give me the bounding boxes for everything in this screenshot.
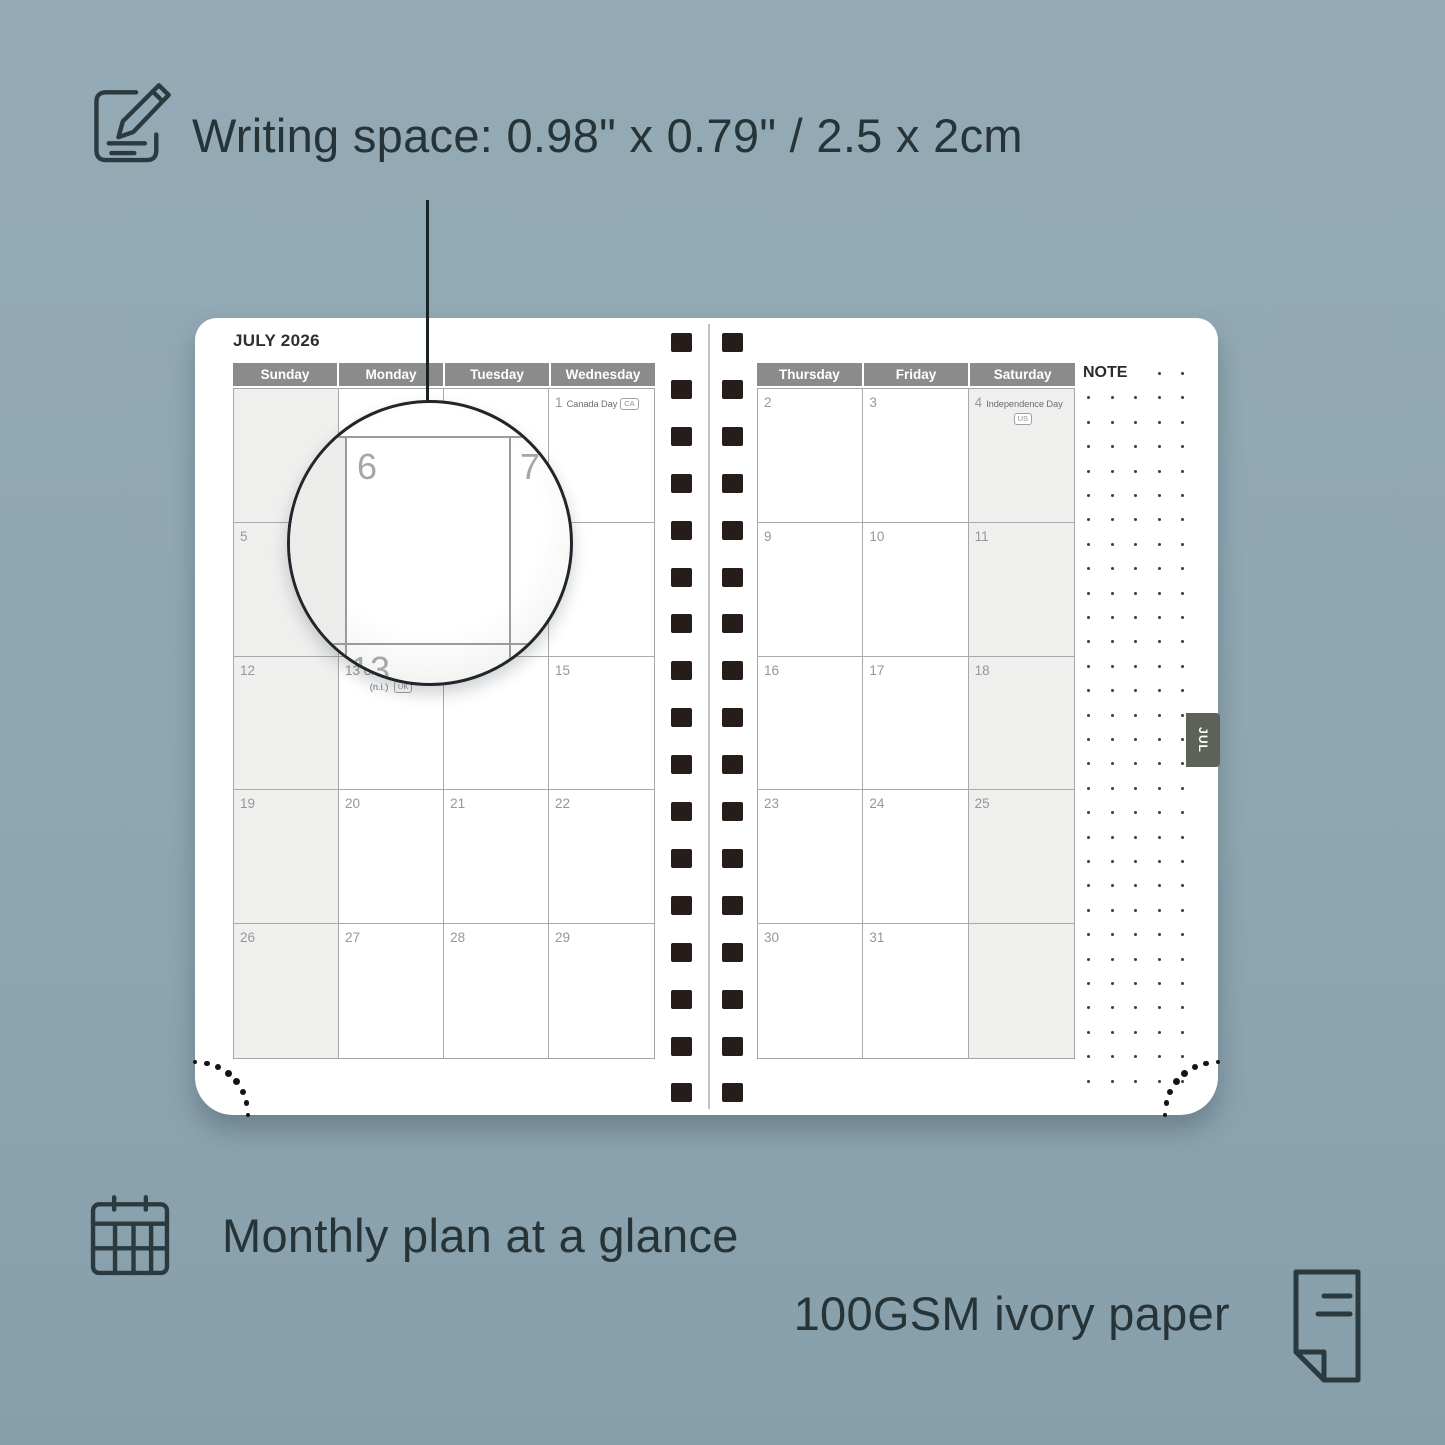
note-dot	[1181, 689, 1184, 692]
date-number: 21	[450, 796, 465, 811]
note-dot	[1158, 982, 1161, 985]
note-dot	[1134, 445, 1137, 448]
note-dot	[1111, 616, 1114, 619]
binding-hole	[722, 614, 743, 633]
note-dot	[1158, 1055, 1161, 1058]
note-dot	[1158, 836, 1161, 839]
binding-hole	[722, 896, 743, 915]
note-dot	[1158, 567, 1161, 570]
note-dot	[1158, 909, 1161, 912]
date-number: 23	[764, 796, 779, 811]
spiral-binding	[671, 333, 763, 1113]
note-dot	[1134, 470, 1137, 473]
binding-hole	[722, 474, 743, 493]
date-number: 9	[764, 529, 772, 544]
note-dot	[1158, 494, 1161, 497]
binding-hole	[722, 802, 743, 821]
note-dot	[1158, 933, 1161, 936]
day-header-tuesday: Tuesday	[445, 363, 549, 386]
note-dot	[1111, 1006, 1114, 1009]
note-dot	[1087, 665, 1090, 668]
binding-hole	[671, 568, 692, 587]
calendar-cell-empty	[969, 924, 1074, 1058]
binding-hole	[722, 1083, 743, 1102]
note-dot	[1181, 1006, 1184, 1009]
note-dot	[1087, 762, 1090, 765]
holiday-name: Independence Day	[986, 399, 1062, 409]
note-dot	[1111, 762, 1114, 765]
note-dot	[1181, 933, 1184, 936]
note-dot	[1158, 616, 1161, 619]
note-dot	[1111, 494, 1114, 497]
note-dot	[1087, 811, 1090, 814]
note-dot	[1181, 762, 1184, 765]
country-badge: US	[1014, 413, 1032, 425]
note-dot	[1111, 445, 1114, 448]
date-number: 15	[555, 663, 570, 678]
note-dot	[1134, 665, 1137, 668]
note-dot	[1134, 1006, 1137, 1009]
calendar-cell-19: 19	[234, 790, 339, 924]
binding-hole	[671, 755, 692, 774]
binding-hole	[722, 568, 743, 587]
note-dot	[1134, 616, 1137, 619]
note-dot	[1158, 665, 1161, 668]
note-dot	[1087, 714, 1090, 717]
date-number: 20	[345, 796, 360, 811]
note-dot	[1158, 884, 1161, 887]
note-dot	[1134, 884, 1137, 887]
binding-hole	[722, 849, 743, 868]
binding-hole	[722, 943, 743, 962]
binding-hole	[671, 1037, 692, 1056]
note-dot	[1087, 640, 1090, 643]
perforation-dot	[204, 1061, 210, 1067]
writing-space-caption: Writing space: 0.98" x 0.79" / 2.5 x 2cm	[192, 108, 1023, 163]
note-dot	[1087, 616, 1090, 619]
date-number: 10	[869, 529, 884, 544]
binding-hole	[671, 990, 692, 1009]
note-dot	[1111, 689, 1114, 692]
note-dot	[1087, 470, 1090, 473]
calendar-cell-26: 26	[234, 924, 339, 1058]
note-dot	[1087, 543, 1090, 546]
binding-hole	[671, 333, 692, 352]
note-dot	[1134, 592, 1137, 595]
note-dot	[1087, 1031, 1090, 1034]
date-number: 1	[555, 395, 563, 410]
binding-hole	[722, 521, 743, 540]
note-dot	[1087, 518, 1090, 521]
calendar-cell-22: 22	[549, 790, 654, 924]
note-dot	[1181, 860, 1184, 863]
date-number: 4	[975, 395, 983, 410]
note-dot	[1134, 982, 1137, 985]
note-dot	[1134, 933, 1137, 936]
day-header-wednesday: Wednesday	[551, 363, 655, 386]
note-dot	[1181, 567, 1184, 570]
note-dot	[1134, 543, 1137, 546]
note-dot	[1158, 592, 1161, 595]
note-dot	[1158, 958, 1161, 961]
note-dot	[1181, 616, 1184, 619]
note-dot	[1111, 933, 1114, 936]
calendar-cell-4: 4Independence DayUS	[969, 389, 1074, 523]
paper-caption: 100GSM ivory paper	[794, 1286, 1230, 1341]
note-dot	[1181, 421, 1184, 424]
note-dot	[1134, 811, 1137, 814]
note-dot	[1181, 958, 1184, 961]
note-dot	[1134, 787, 1137, 790]
calendar-cell-28: 28	[444, 924, 549, 1058]
note-dot	[1181, 665, 1184, 668]
note-dot	[1158, 470, 1161, 473]
note-dot	[1181, 909, 1184, 912]
note-dot	[1111, 665, 1114, 668]
note-dot	[1181, 982, 1184, 985]
note-dot	[1111, 1031, 1114, 1034]
date-number: 16	[764, 663, 779, 678]
note-dot	[1111, 811, 1114, 814]
magnified-grid-line	[345, 436, 347, 683]
note-dot	[1111, 787, 1114, 790]
note-dot	[1181, 1031, 1184, 1034]
paper-sheet-icon	[1272, 1264, 1372, 1388]
note-dot	[1181, 738, 1184, 741]
country-badge: CA	[620, 398, 638, 410]
date-number: 5	[240, 529, 248, 544]
date-number: 11	[975, 529, 989, 544]
note-dot	[1181, 592, 1184, 595]
calendar-cell-24: 24	[863, 790, 968, 924]
note-dot	[1111, 714, 1114, 717]
calendar-cell-15: 15	[549, 657, 654, 791]
magnified-date-13: 13	[350, 649, 390, 686]
note-dot	[1111, 836, 1114, 839]
binding-hole	[671, 380, 692, 399]
binding-hole	[722, 990, 743, 1009]
month-title: JULY 2026	[233, 331, 320, 351]
note-dot	[1111, 421, 1114, 424]
note-dot	[1111, 860, 1114, 863]
note-dot	[1111, 982, 1114, 985]
note-dot	[1087, 421, 1090, 424]
note-dot	[1181, 640, 1184, 643]
binding-hole	[671, 849, 692, 868]
note-dot	[1111, 592, 1114, 595]
date-number: 31	[869, 930, 884, 945]
calendar-cell-9: 9	[758, 523, 863, 657]
calendar-cell-18: 18	[969, 657, 1074, 791]
perforation-dot	[1203, 1061, 1209, 1067]
calendar-cell-16: 16	[758, 657, 863, 791]
note-dot	[1111, 738, 1114, 741]
note-dot	[1111, 1055, 1114, 1058]
calendar-grid-icon	[86, 1192, 174, 1280]
binding-hole	[671, 708, 692, 727]
note-dot	[1087, 592, 1090, 595]
calendar-cell-11: 11	[969, 523, 1074, 657]
calendar-cell-3: 3	[863, 389, 968, 523]
note-dot	[1087, 494, 1090, 497]
date-number: 3	[869, 395, 877, 410]
day-header-friday: Friday	[864, 363, 969, 386]
note-dot	[1181, 1080, 1184, 1083]
month-tab-label: JUL	[1196, 727, 1210, 753]
holiday-name: Canada Day	[567, 399, 618, 409]
product-image: Writing space: 0.98" x 0.79" / 2.5 x 2cm…	[0, 0, 1445, 1445]
date-number: 27	[345, 930, 360, 945]
calendar-right-page: ThursdayFridaySaturday234Independence Da…	[757, 363, 1075, 1059]
note-dot	[1087, 860, 1090, 863]
note-dot	[1181, 836, 1184, 839]
calendar-cell-21: 21	[444, 790, 549, 924]
note-dot	[1158, 762, 1161, 765]
day-header-saturday: Saturday	[970, 363, 1075, 386]
magnified-date-6: 6	[357, 446, 377, 488]
note-dot	[1158, 372, 1161, 375]
perforation-dot	[1216, 1060, 1221, 1065]
note-dot	[1181, 1055, 1184, 1058]
magnified-grid-line	[290, 643, 570, 645]
calendar-cell-30: 30	[758, 924, 863, 1058]
note-dot	[1111, 543, 1114, 546]
note-dot	[1134, 836, 1137, 839]
note-dot	[1181, 543, 1184, 546]
note-dot-grid	[1087, 372, 1187, 1092]
note-dot	[1087, 909, 1090, 912]
note-dot	[1087, 445, 1090, 448]
note-dot	[1158, 396, 1161, 399]
note-dot	[1134, 909, 1137, 912]
binding-hole	[722, 708, 743, 727]
perforation-dot	[1163, 1113, 1168, 1118]
date-number: 29	[555, 930, 570, 945]
note-dot	[1111, 518, 1114, 521]
note-dot	[1111, 909, 1114, 912]
binding-hole	[671, 521, 692, 540]
date-number: 18	[975, 663, 990, 678]
note-dot	[1087, 884, 1090, 887]
note-dot	[1087, 982, 1090, 985]
note-dot	[1134, 567, 1137, 570]
note-dot	[1181, 714, 1184, 717]
note-dot	[1158, 640, 1161, 643]
note-dot	[1134, 1031, 1137, 1034]
note-dot	[1134, 958, 1137, 961]
binding-hole	[722, 1037, 743, 1056]
calendar-cell-31: 31	[863, 924, 968, 1058]
binding-hole	[671, 943, 692, 962]
note-dot	[1134, 421, 1137, 424]
calendar-cell-29: 29	[549, 924, 654, 1058]
calendar-cell-2: 2	[758, 389, 863, 523]
binding-hole	[722, 333, 743, 352]
date-number: 22	[555, 796, 570, 811]
note-dot	[1134, 860, 1137, 863]
magnified-sunday-column	[290, 436, 345, 683]
note-dot	[1087, 689, 1090, 692]
day-header-thursday: Thursday	[757, 363, 862, 386]
magnified-grid-line	[509, 436, 511, 683]
perforation-dot	[225, 1070, 232, 1077]
note-dot	[1134, 640, 1137, 643]
note-dot	[1111, 1080, 1114, 1083]
note-dot	[1158, 714, 1161, 717]
binding-hole	[671, 661, 692, 680]
binding-hole	[722, 427, 743, 446]
calendar-cell-20: 20	[339, 790, 444, 924]
calendar-cell-23: 23	[758, 790, 863, 924]
date-number: 30	[764, 930, 779, 945]
note-dot	[1087, 738, 1090, 741]
note-dot	[1134, 1055, 1137, 1058]
calendar-cell-10: 10	[863, 523, 968, 657]
binding-hole	[671, 474, 692, 493]
magnified-grid-line	[290, 436, 570, 438]
note-dot	[1134, 714, 1137, 717]
monthly-plan-caption: Monthly plan at a glance	[222, 1208, 739, 1263]
date-number: 28	[450, 930, 465, 945]
note-dot	[1181, 445, 1184, 448]
binding-hole	[671, 802, 692, 821]
calendar-cell-17: 17	[863, 657, 968, 791]
magnified-date-7: 7	[520, 446, 540, 488]
binding-hole	[671, 614, 692, 633]
magnifier-circle: 6 7 13	[287, 400, 573, 686]
note-dot	[1158, 689, 1161, 692]
binding-hole	[671, 896, 692, 915]
perforation-dot	[1164, 1100, 1170, 1106]
binding-hole	[671, 1083, 692, 1102]
note-dot	[1134, 689, 1137, 692]
note-dot	[1087, 836, 1090, 839]
note-dot	[1087, 1055, 1090, 1058]
note-dot	[1134, 738, 1137, 741]
note-dot	[1158, 1006, 1161, 1009]
writing-note-pencil-icon	[85, 78, 173, 170]
note-dot	[1158, 738, 1161, 741]
note-dot	[1181, 372, 1184, 375]
note-dot	[1158, 421, 1161, 424]
note-dot	[1087, 1080, 1090, 1083]
binding-hole	[722, 755, 743, 774]
note-dot	[1158, 787, 1161, 790]
note-dot	[1181, 518, 1184, 521]
note-dot	[1158, 518, 1161, 521]
date-number: 2	[764, 395, 772, 410]
date-number: 25	[975, 796, 990, 811]
binding-hole	[722, 661, 743, 680]
note-dot	[1087, 396, 1090, 399]
month-tab-jul: JUL	[1186, 713, 1220, 767]
note-dot	[1087, 787, 1090, 790]
note-dot	[1134, 396, 1137, 399]
note-dot	[1111, 470, 1114, 473]
note-dot	[1181, 470, 1184, 473]
note-dot	[1181, 396, 1184, 399]
note-dot	[1111, 884, 1114, 887]
note-dot	[1181, 811, 1184, 814]
binding-hole	[722, 380, 743, 399]
note-label: NOTE	[1083, 362, 1153, 384]
note-dot	[1158, 860, 1161, 863]
note-dot	[1158, 543, 1161, 546]
note-dot	[1181, 787, 1184, 790]
binding-hole	[671, 427, 692, 446]
date-number: 26	[240, 930, 255, 945]
note-dot	[1134, 1080, 1137, 1083]
callout-line	[426, 200, 429, 404]
note-dot	[1158, 1031, 1161, 1034]
note-dot	[1087, 1006, 1090, 1009]
calendar-cell-25: 25	[969, 790, 1074, 924]
note-dot	[1087, 958, 1090, 961]
day-header-sunday: Sunday	[233, 363, 337, 386]
note-dot	[1134, 762, 1137, 765]
calendar-cell-27: 27	[339, 924, 444, 1058]
date-number: 17	[869, 663, 884, 678]
note-dot	[1158, 445, 1161, 448]
holiday-badge-row: US	[975, 413, 1068, 425]
note-dot	[1087, 933, 1090, 936]
date-number: 24	[869, 796, 884, 811]
note-dot	[1181, 494, 1184, 497]
date-number: 12	[240, 663, 255, 678]
note-dot	[1111, 958, 1114, 961]
perforation-dot	[246, 1113, 251, 1118]
note-dot	[1111, 567, 1114, 570]
date-number: 19	[240, 796, 255, 811]
note-dot	[1134, 518, 1137, 521]
note-dot	[1158, 811, 1161, 814]
note-dot	[1181, 884, 1184, 887]
note-dot	[1111, 396, 1114, 399]
note-dot	[1111, 640, 1114, 643]
note-dot	[1158, 1080, 1161, 1083]
note-dot	[1087, 567, 1090, 570]
note-dot	[1134, 494, 1137, 497]
